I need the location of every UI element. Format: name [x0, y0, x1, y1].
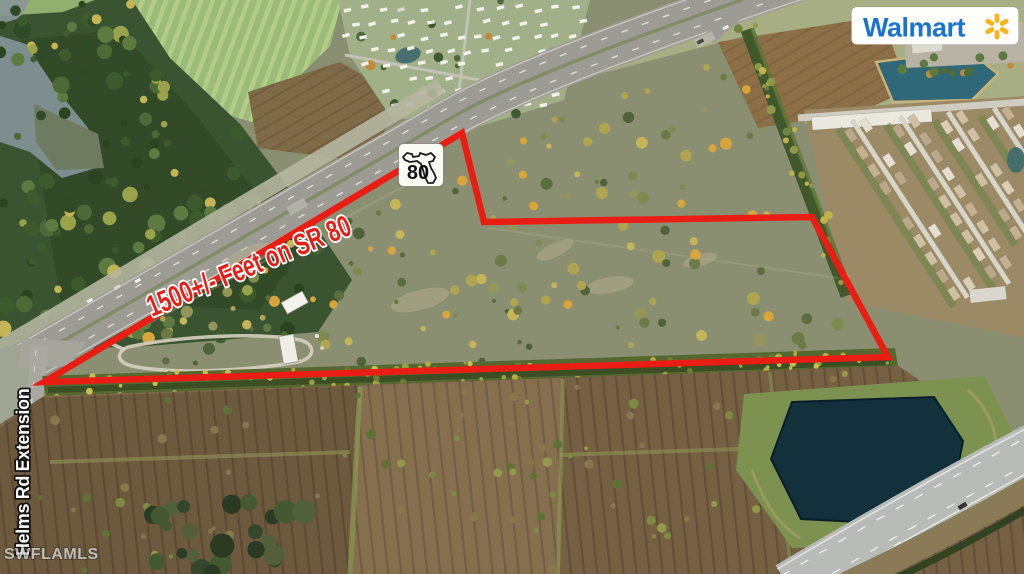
vehicle-dot-2	[320, 346, 324, 350]
walmart-badge: Walmart	[852, 7, 1019, 45]
shield-number: 80	[407, 162, 429, 184]
watermark: SWFLAMLS	[4, 546, 99, 563]
aerial-photo: 1500+/- Feet on SR 80 80 Helms Rd Extens…	[0, 0, 1024, 574]
helms-road-label: Helms Rd Extension	[13, 388, 33, 556]
walmart-logo-text: Walmart	[863, 13, 966, 43]
vehicle-dot-1	[315, 334, 319, 338]
route-80-shield: 80	[399, 144, 444, 187]
listing-aerial-photo: 1500+/- Feet on SR 80 80 Helms Rd Extens…	[0, 0, 1024, 574]
